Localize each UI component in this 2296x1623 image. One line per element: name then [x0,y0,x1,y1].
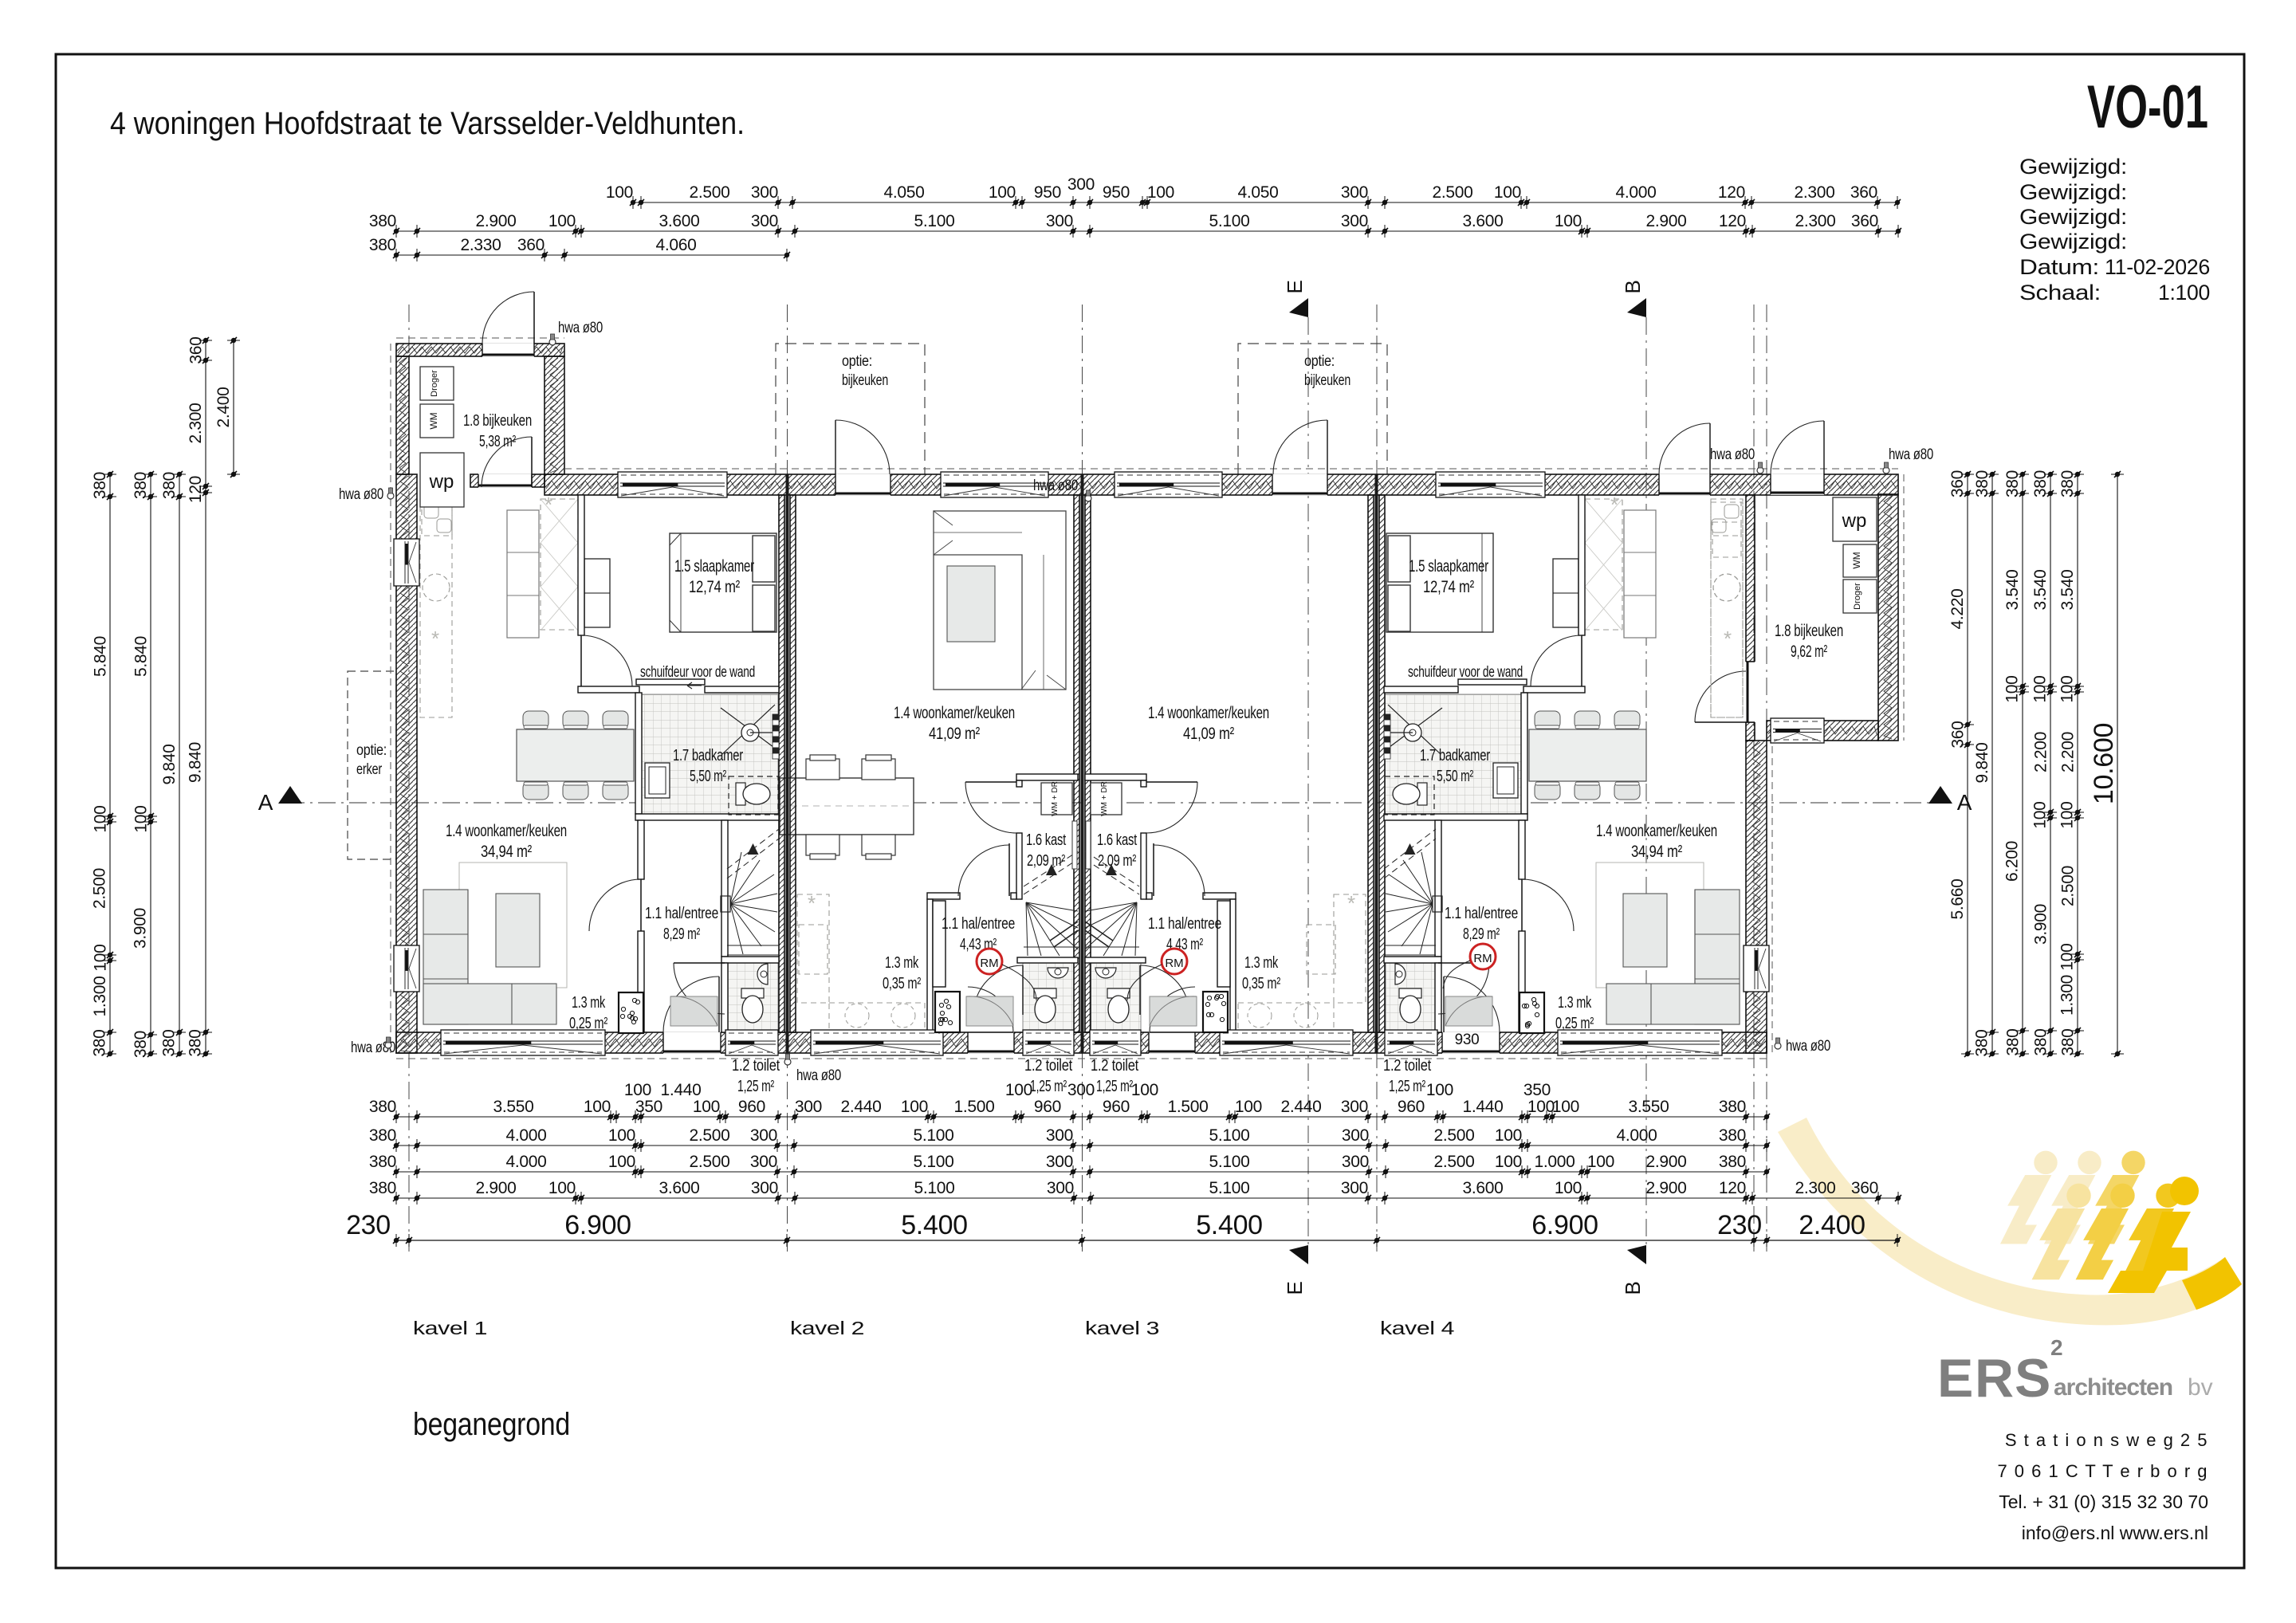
svg-text:A: A [258,790,273,815]
svg-text:380: 380 [2059,1028,2078,1055]
svg-text:100: 100 [624,1081,651,1099]
svg-text:2.900: 2.900 [475,212,516,230]
svg-text:360: 360 [1851,1179,1878,1197]
svg-text:380: 380 [1719,1126,1746,1145]
svg-text:2.500: 2.500 [1433,1153,1474,1171]
svg-text:2.300: 2.300 [1795,1179,1835,1197]
svg-text:100: 100 [548,1179,576,1197]
svg-text:960: 960 [738,1098,765,1116]
svg-text:1.500: 1.500 [953,1098,994,1116]
svg-text:300: 300 [1047,1179,1074,1197]
svg-text:10.600: 10.600 [2089,723,2119,804]
svg-text:hwa ø80: hwa ø80 [796,1067,841,1084]
svg-text:4.000: 4.000 [1616,1126,1657,1145]
svg-text:4.050: 4.050 [883,183,924,202]
svg-text:E: E [1283,280,1307,293]
svg-text:6.900: 6.900 [564,1210,631,1240]
svg-text:100: 100 [1235,1098,1262,1116]
svg-text:9.840: 9.840 [1973,742,1991,783]
svg-text:Datum:: Datum: [2019,255,2099,279]
svg-text:5.100: 5.100 [913,1126,953,1145]
svg-text:100: 100 [132,805,151,832]
svg-text:2.900: 2.900 [1645,212,1686,230]
svg-text:3.550: 3.550 [493,1098,533,1116]
svg-text:*: * [431,627,439,650]
svg-text:1.1 hal/entree: 1.1 hal/entree [1148,915,1221,933]
svg-text:5.840: 5.840 [92,636,110,677]
svg-text:1.5 slaapkamer: 1.5 slaapkamer [1409,557,1488,576]
svg-text:Droger: Droger [1853,583,1862,610]
svg-text:100: 100 [608,1153,635,1171]
svg-text:1.1 hal/entree: 1.1 hal/entree [1445,905,1518,922]
svg-text:300: 300 [1341,212,1368,230]
svg-text:WM + DR: WM + DR [1051,781,1060,816]
svg-text:3.600: 3.600 [1462,212,1503,230]
svg-text:300: 300 [1342,1126,1369,1145]
svg-text:5.660: 5.660 [1948,878,1967,919]
svg-text:300: 300 [751,183,778,202]
svg-text:Droger: Droger [430,370,439,397]
svg-text:1,25 m²: 1,25 m² [1389,1078,1425,1095]
svg-text:9.840: 9.840 [187,742,205,783]
svg-text:100: 100 [1426,1081,1453,1099]
svg-text:1.6 kast: 1.6 kast [1026,831,1067,849]
svg-text:kavel 1: kavel 1 [413,1318,487,1338]
svg-text:erker: erker [356,761,383,778]
svg-text:300: 300 [1046,1153,1073,1171]
svg-text:100: 100 [548,212,576,230]
svg-text:950: 950 [1034,183,1061,202]
svg-text:100: 100 [1147,183,1174,202]
svg-text:300: 300 [1046,212,1073,230]
svg-text:2,09 m²: 2,09 m² [1098,852,1136,870]
svg-text:6.900: 6.900 [1531,1210,1598,1240]
svg-text:wp: wp [1842,510,1867,532]
svg-text:1.2 toilet: 1.2 toilet [1383,1057,1432,1075]
svg-text:4.000: 4.000 [505,1153,546,1171]
svg-text:Gewijzigd:: Gewijzigd: [2019,205,2127,229]
svg-text:100: 100 [1555,212,1582,230]
svg-text:300: 300 [795,1098,822,1116]
svg-text:5.400: 5.400 [1196,1210,1263,1240]
svg-text:*: * [1724,627,1732,650]
svg-text:3.600: 3.600 [1462,1179,1503,1197]
svg-text:5.400: 5.400 [901,1210,968,1240]
svg-text:4.000: 4.000 [1615,183,1656,202]
svg-text:3.550: 3.550 [1628,1098,1669,1116]
svg-text:2.500: 2.500 [689,183,729,202]
svg-text:B: B [1621,1281,1645,1295]
svg-text:380: 380 [369,1153,396,1171]
svg-text:5.100: 5.100 [1209,1179,1249,1197]
svg-text:1.000: 1.000 [1534,1153,1575,1171]
svg-text:930: 930 [1455,1032,1480,1048]
svg-text:kavel 4: kavel 4 [1380,1318,1455,1338]
svg-text:8,29 m²: 8,29 m² [663,925,700,943]
svg-text:1.440: 1.440 [1462,1098,1503,1116]
svg-text:2.500: 2.500 [689,1126,729,1145]
svg-text:380: 380 [369,1126,396,1145]
svg-text:hwa ø80: hwa ø80 [1710,446,1755,463]
svg-text:360: 360 [1948,470,1967,497]
svg-text:350: 350 [635,1098,662,1116]
svg-text:0,35 m²: 0,35 m² [883,975,921,992]
svg-text:120: 120 [1719,1179,1746,1197]
svg-text:beganegrond: beganegrond [413,1407,570,1442]
svg-text:WM: WM [428,412,439,429]
svg-text:100: 100 [901,1098,928,1116]
svg-text:2.300: 2.300 [1795,212,1835,230]
svg-text:1.4 woonkamer/keuken: 1.4 woonkamer/keuken [1148,704,1269,722]
svg-text:380: 380 [369,236,396,254]
svg-text:380: 380 [369,1098,396,1116]
svg-text:300: 300 [751,1179,778,1197]
svg-text:120: 120 [187,476,205,503]
svg-text:2.400: 2.400 [1799,1210,1866,1240]
svg-text:*: * [545,493,552,517]
svg-text:optie:: optie: [356,742,387,759]
svg-text:100: 100 [2031,675,2050,702]
svg-text:300: 300 [750,1153,777,1171]
svg-text:5,50 m²: 5,50 m² [1437,768,1473,785]
svg-text:3.900: 3.900 [132,908,150,949]
svg-text:380: 380 [187,1029,205,1056]
svg-text:4.060: 4.060 [655,236,696,254]
svg-text:5.100: 5.100 [913,1153,953,1171]
svg-text:100: 100 [606,183,633,202]
svg-text:5.100: 5.100 [1209,1153,1249,1171]
svg-text:2.500: 2.500 [1433,1126,1474,1145]
svg-text:1.2 toilet: 1.2 toilet [1091,1057,1139,1075]
svg-text:RM: RM [1473,952,1492,965]
svg-text:5,50 m²: 5,50 m² [690,768,726,785]
svg-text:Tel. + 31 (0) 315 32 30 70: Tel. + 31 (0) 315 32 30 70 [1999,1491,2208,1512]
svg-text:1.300: 1.300 [91,976,109,1016]
svg-text:2.500: 2.500 [2059,866,2078,906]
svg-text:3.540: 3.540 [2058,569,2077,610]
svg-text:*: * [808,891,816,915]
svg-text:5.100: 5.100 [1209,212,1249,230]
svg-text:kavel 2: kavel 2 [790,1318,864,1338]
svg-text:12,74 m²: 12,74 m² [1423,578,1474,596]
svg-text:2,09 m²: 2,09 m² [1027,852,1065,870]
svg-text:100: 100 [1495,1153,1522,1171]
svg-text:380: 380 [2003,470,2022,497]
svg-text:5.100: 5.100 [914,1179,954,1197]
svg-text:3.900: 3.900 [2032,904,2050,945]
svg-text:100: 100 [2058,801,2077,828]
svg-text:0,35 m²: 0,35 m² [1242,975,1280,992]
svg-text:380: 380 [132,472,150,499]
svg-text:schuifdeur voor de wand: schuifdeur voor de wand [1408,664,1523,681]
svg-text:100: 100 [1552,1098,1579,1116]
svg-text:5,38 m²: 5,38 m² [479,433,516,450]
svg-text:100: 100 [584,1098,611,1116]
svg-text:1.1 hal/entree: 1.1 hal/entree [942,915,1015,933]
svg-text:1,25 m²: 1,25 m² [1030,1078,1067,1095]
svg-text:12,74 m²: 12,74 m² [689,578,740,596]
svg-text:300: 300 [1341,1179,1368,1197]
svg-text:Gewijzigd:: Gewijzigd: [2019,180,2127,204]
svg-text:100: 100 [1587,1153,1614,1171]
svg-text:380: 380 [1719,1153,1746,1171]
svg-text:RM: RM [980,957,998,970]
svg-text:9.840: 9.840 [160,744,179,784]
svg-text:300: 300 [1342,1153,1369,1171]
svg-text:300: 300 [750,1126,777,1145]
svg-text:960: 960 [1034,1098,1061,1116]
svg-text:R: R [1975,1348,2014,1409]
svg-text:1.3 mk: 1.3 mk [885,954,919,972]
svg-text:0,25 m²: 0,25 m² [1555,1015,1594,1032]
svg-text:100: 100 [693,1098,720,1116]
svg-text:100: 100 [2058,675,2077,702]
svg-text:380: 380 [1973,470,1991,497]
svg-text:1.3 mk: 1.3 mk [1244,954,1279,972]
svg-text:3.600: 3.600 [659,212,699,230]
svg-text:380: 380 [91,472,109,499]
svg-text:300: 300 [1067,175,1095,194]
svg-text:hwa ø80: hwa ø80 [558,320,603,336]
svg-text:hwa ø80: hwa ø80 [1889,446,1933,463]
svg-text:4 woningen Hoofdstraat te Vars: 4 woningen Hoofdstraat te Varsselder-Vel… [110,106,745,141]
svg-text:41,09 m²: 41,09 m² [1183,725,1234,743]
svg-text:5.840: 5.840 [132,636,151,677]
svg-text:1.4 woonkamer/keuken: 1.4 woonkamer/keuken [894,704,1015,722]
svg-text:1.300: 1.300 [2058,975,2077,1016]
svg-text:120: 120 [1719,212,1746,230]
svg-text:3.600: 3.600 [659,1179,699,1197]
svg-text:380: 380 [1973,1029,1991,1056]
svg-text:bv: bv [2188,1374,2213,1401]
svg-text:380: 380 [160,472,179,499]
svg-text:2.440: 2.440 [840,1098,881,1116]
svg-text:E: E [1937,1348,1973,1409]
svg-text:info@ers.nl www.ers.nl: info@ers.nl www.ers.nl [2022,1523,2208,1543]
svg-text:34,94 m²: 34,94 m² [481,843,532,861]
svg-text:380: 380 [91,1029,109,1056]
svg-text:230: 230 [346,1210,391,1240]
svg-text:1.500: 1.500 [1167,1098,1208,1116]
svg-text:3.540: 3.540 [2031,569,2050,610]
svg-text:0,25 m²: 0,25 m² [569,1015,607,1032]
svg-text:100: 100 [1131,1081,1158,1099]
svg-text:2.300: 2.300 [1794,183,1834,202]
svg-text:wp: wp [429,471,454,493]
svg-text:100: 100 [1494,183,1521,202]
svg-text:A: A [1957,790,1972,815]
svg-text:380: 380 [132,1031,150,1058]
svg-text:100: 100 [92,944,110,971]
svg-text:300: 300 [1341,1098,1368,1116]
svg-text:WM + DR: WM + DR [1100,781,1109,816]
svg-text:2.500: 2.500 [91,868,109,909]
svg-text:B: B [1621,280,1645,293]
svg-text:380: 380 [2031,470,2050,497]
svg-text:Gewijzigd:: Gewijzigd: [2019,230,2127,253]
svg-text:1.4 woonkamer/keuken: 1.4 woonkamer/keuken [446,822,567,840]
svg-text:360: 360 [517,236,545,254]
svg-text:300: 300 [1067,1081,1095,1099]
svg-text:2.200: 2.200 [2032,732,2050,772]
svg-text:2.900: 2.900 [1645,1153,1686,1171]
svg-text:*: * [1347,891,1355,915]
svg-text:380: 380 [1719,1098,1746,1116]
svg-text:360: 360 [1851,212,1878,230]
svg-text:11-02-2026: 11-02-2026 [2105,255,2210,279]
svg-text:1,25 m²: 1,25 m² [1096,1078,1133,1095]
svg-text:300: 300 [1046,1126,1073,1145]
svg-text:Gewijzigd:: Gewijzigd: [2019,155,2127,179]
svg-text:2.330: 2.330 [460,236,501,254]
svg-text:380: 380 [369,1179,396,1197]
svg-text:100: 100 [1495,1126,1522,1145]
svg-text:4.220: 4.220 [1948,588,1967,629]
svg-text:2.300: 2.300 [187,403,205,443]
svg-text:hwa ø80: hwa ø80 [1786,1038,1830,1055]
svg-text:360: 360 [1850,183,1877,202]
svg-text:E: E [1283,1281,1307,1295]
svg-text:1.7 badkamer: 1.7 badkamer [673,747,743,764]
svg-text:7 0 6 1 C T T e r b o r g: 7 0 6 1 C T T e r b o r g [1997,1461,2208,1481]
svg-text:WM: WM [1851,552,1862,568]
svg-text:hwa ø80: hwa ø80 [1033,477,1078,494]
svg-text:100: 100 [989,183,1016,202]
svg-text:S: S [2015,1348,2050,1409]
svg-text:optie:: optie: [842,353,872,370]
svg-text:*: * [1610,493,1618,517]
svg-text:2.900: 2.900 [475,1179,516,1197]
svg-text:3.540: 3.540 [2003,569,2022,610]
svg-text:380: 380 [2032,1028,2050,1055]
svg-text:1.440: 1.440 [660,1081,701,1099]
svg-text:300: 300 [1341,183,1368,202]
svg-text:hwa ø80: hwa ø80 [339,486,383,503]
svg-text:380: 380 [160,1029,179,1056]
svg-text:1.6 kast: 1.6 kast [1097,831,1138,849]
svg-text:5.100: 5.100 [1209,1126,1249,1145]
svg-text:1.5 slaapkamer: 1.5 slaapkamer [674,557,754,576]
svg-text:1.1 hal/entree: 1.1 hal/entree [645,905,718,922]
svg-text:100: 100 [2031,801,2050,828]
svg-text:100: 100 [608,1126,635,1145]
svg-text:360: 360 [1949,721,1968,748]
svg-text:4.000: 4.000 [505,1126,546,1145]
svg-text:schuifdeur voor de wand: schuifdeur voor de wand [640,664,755,681]
svg-text:300: 300 [751,212,778,230]
svg-text:1.3 mk: 1.3 mk [572,994,606,1012]
svg-text:2: 2 [2050,1335,2063,1360]
svg-text:120: 120 [1718,183,1745,202]
svg-text:1.8 bijkeuken: 1.8 bijkeuken [463,412,532,430]
svg-text:360: 360 [187,336,206,364]
svg-text:960: 960 [1103,1098,1130,1116]
svg-text:1.2 toilet: 1.2 toilet [732,1057,780,1075]
svg-text:1:100: 1:100 [2158,281,2210,305]
svg-text:S t a t i o n s w e g 2 5: S t a t i o n s w e g 2 5 [2005,1430,2208,1450]
svg-text:34,94 m²: 34,94 m² [1631,843,1682,861]
svg-text:100: 100 [92,805,110,832]
svg-text:2.440: 2.440 [1280,1098,1321,1116]
svg-text:380: 380 [369,212,396,230]
svg-text:230: 230 [1717,1210,1762,1240]
svg-text:100: 100 [2058,943,2077,970]
svg-text:2.400: 2.400 [214,387,233,427]
svg-text:380: 380 [2004,1028,2023,1055]
svg-text:5.100: 5.100 [914,212,954,230]
svg-text:RM: RM [1165,957,1183,970]
svg-text:6.200: 6.200 [2003,841,2022,882]
svg-text:2.900: 2.900 [1645,1179,1686,1197]
svg-text:bijkeuken: bijkeuken [1304,372,1350,389]
svg-text:380: 380 [2058,470,2077,497]
svg-text:2.200: 2.200 [2059,732,2078,772]
svg-text:bijkeuken: bijkeuken [842,372,888,389]
svg-text:1.3 mk: 1.3 mk [1558,994,1592,1012]
svg-text:4.050: 4.050 [1237,183,1278,202]
svg-text:1.2 toilet: 1.2 toilet [1024,1057,1073,1075]
svg-text:8,29 m²: 8,29 m² [1463,925,1500,943]
svg-text:kavel 3: kavel 3 [1085,1318,1159,1338]
svg-text:960: 960 [1398,1098,1425,1116]
svg-text:100: 100 [1005,1081,1032,1099]
svg-text:950: 950 [1103,183,1130,202]
svg-text:VO-01: VO-01 [2087,73,2208,141]
svg-text:optie:: optie: [1304,353,1335,370]
svg-text:1,25 m²: 1,25 m² [737,1078,774,1095]
svg-text:100: 100 [2003,675,2022,702]
svg-text:41,09 m²: 41,09 m² [929,725,980,743]
svg-text:100: 100 [1555,1179,1582,1197]
svg-text:2.500: 2.500 [1432,183,1472,202]
svg-text:2.500: 2.500 [689,1153,729,1171]
svg-text:350: 350 [1523,1081,1551,1099]
svg-text:1.7 badkamer: 1.7 badkamer [1420,747,1490,764]
svg-text:1.8 bijkeuken: 1.8 bijkeuken [1775,622,1843,640]
svg-text:9,62 m²: 9,62 m² [1791,643,1827,661]
svg-text:architecten: architecten [2054,1374,2172,1401]
svg-text:100: 100 [1527,1098,1555,1116]
svg-text:1.4 woonkamer/keuken: 1.4 woonkamer/keuken [1596,822,1717,840]
svg-text:Schaal:: Schaal: [2019,281,2101,305]
